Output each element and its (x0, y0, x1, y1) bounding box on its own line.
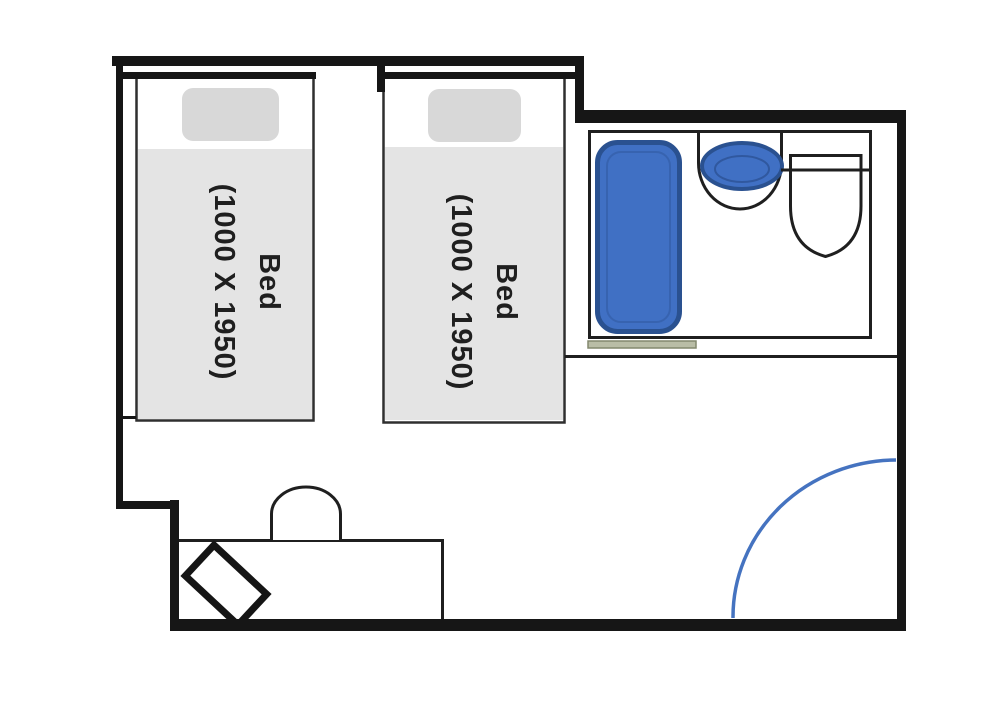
bathtub (598, 143, 680, 332)
wall-step-horizontal (116, 501, 178, 509)
wall-step-vertical (170, 500, 179, 631)
bathroom-door-threshold (588, 341, 696, 348)
bed-2-pillow (428, 89, 521, 142)
bed-1-blanket (138, 149, 312, 419)
headboard-rail-left (121, 72, 316, 79)
wall-top (112, 56, 583, 66)
wall-stub-left (117, 416, 136, 419)
floor-plan-canvas: Bed (1000 X 1950) Bed (1000 X 1950) (0, 0, 1000, 703)
wall-right (897, 110, 906, 631)
door-swing-arc (733, 460, 896, 618)
wall-stub-between-beds (377, 62, 385, 92)
bed-1 (137, 75, 314, 421)
bed-1-pillow (182, 88, 279, 141)
wall-bottom (170, 619, 906, 631)
chair (272, 487, 341, 540)
floor-plan-drawing (0, 0, 1000, 703)
bathroom (565, 132, 897, 357)
wall-top-right (575, 110, 906, 123)
wall-left (116, 56, 123, 509)
bed-2-blanket (385, 147, 563, 420)
bed-2 (384, 74, 565, 423)
headboard-rail-right (381, 72, 575, 79)
